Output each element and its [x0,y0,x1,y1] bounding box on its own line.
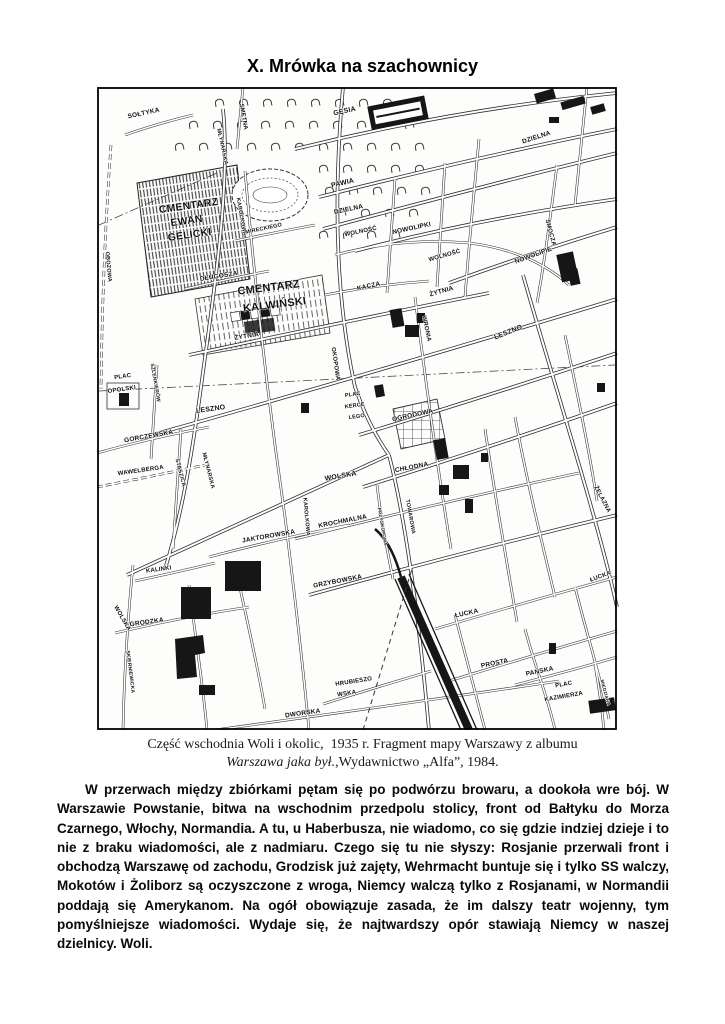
caption-line-1: Część wschodnia Woli i okolic, 1935 r. F… [0,736,725,754]
map-svg: SOŁTYKASMĘTNAOBOZOWAMŁYNARSKAGĘSIAPAWIAD… [97,87,630,730]
caption-publisher: ,Wydawnictwo „Alfa”, 1984. [335,755,499,770]
map-figure: SOŁTYKASMĘTNAOBOZOWAMŁYNARSKAGĘSIAPAWIAD… [97,87,630,730]
map-caption: Część wschodnia Woli i okolic, 1935 r. F… [0,736,725,772]
caption-line-2: Warszawa jaka był.,Wydawnictwo „Alfa”, 1… [0,754,725,772]
caption-book-title: Warszawa jaka był. [226,755,335,770]
page-title: X. Mrówka na szachownicy [0,56,725,77]
document-page: X. Mrówka na szachownicy [0,0,725,1024]
body-paragraph: W przerwach między zbiórkami pętam się p… [57,780,669,954]
